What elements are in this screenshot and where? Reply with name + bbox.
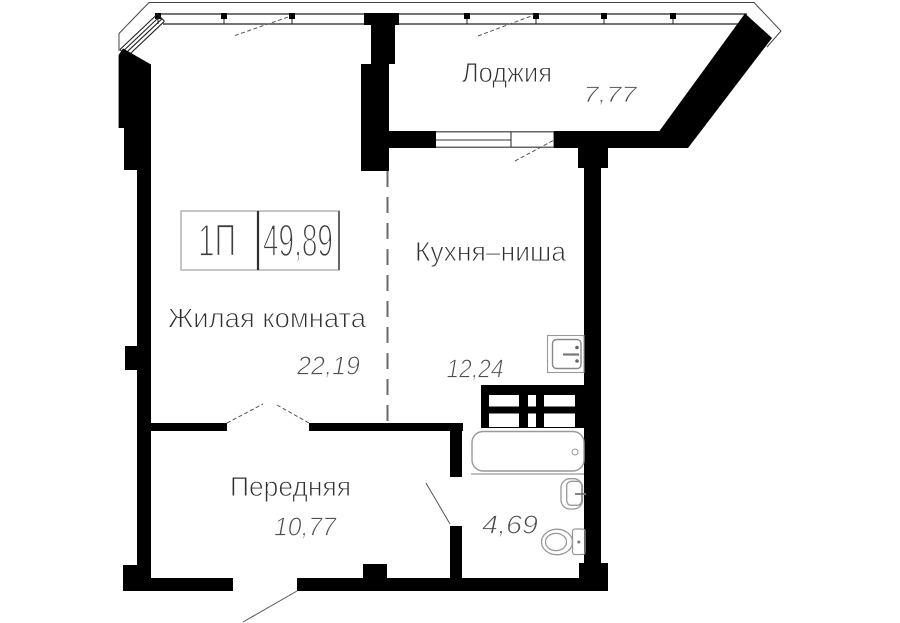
- svg-text:12,24: 12,24: [447, 354, 504, 384]
- svg-text:Лоджия: Лоджия: [462, 57, 552, 88]
- svg-text:Жилая комната: Жилая комната: [168, 303, 366, 334]
- svg-text:22,19: 22,19: [296, 351, 360, 381]
- svg-text:10,77: 10,77: [274, 512, 337, 542]
- svg-text:4,69: 4,69: [482, 510, 538, 540]
- svg-text:Передняя: Передняя: [230, 471, 351, 502]
- svg-text:Кухня–ниша: Кухня–ниша: [415, 236, 566, 267]
- svg-text:49,89: 49,89: [263, 215, 333, 266]
- svg-text:7,77: 7,77: [584, 82, 638, 107]
- svg-text:1П: 1П: [198, 215, 236, 266]
